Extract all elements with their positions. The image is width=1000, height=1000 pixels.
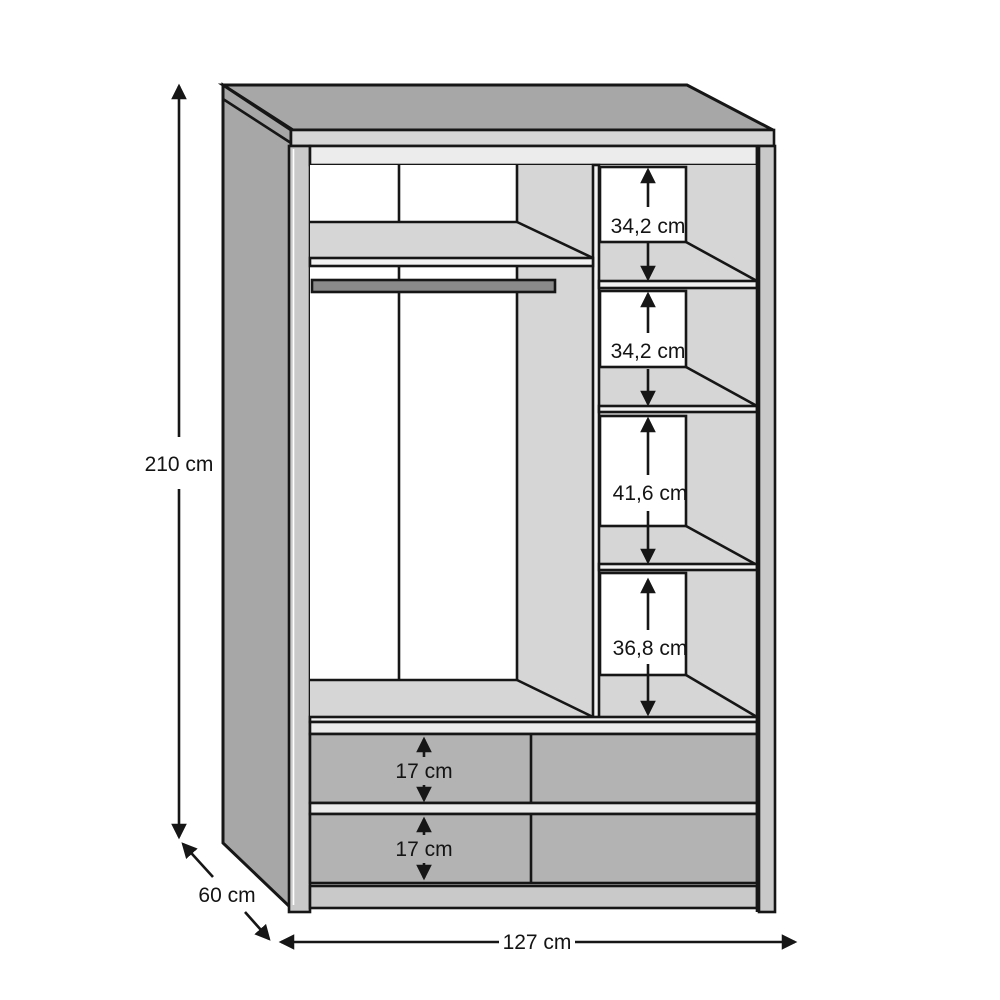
drawer-1-dimension-label: 17 cm <box>395 760 452 783</box>
depth-arrow-up <box>183 844 213 877</box>
divider-front-edge <box>593 165 599 722</box>
right-front-stile <box>759 146 775 912</box>
compartment-3-label-box <box>600 416 686 526</box>
drawer-row-1 <box>310 734 757 803</box>
cabinet-drawing <box>223 85 775 912</box>
width-dimension-label: 127 cm <box>503 931 572 954</box>
top-front-edge <box>291 130 774 146</box>
wardrobe-dimension-diagram: 34,2 cm 34,2 cm 41,6 cm 36,8 cm 17 cm 17… <box>0 0 1000 1000</box>
height-dimension-label: 210 cm <box>145 453 214 476</box>
compartment-4-dimension-label: 36,8 cm <box>613 637 688 660</box>
compartment-3-dimension-label: 41,6 cm <box>613 482 688 505</box>
drawer-top-rail <box>310 722 757 734</box>
left-shelf-front-edge <box>310 258 593 266</box>
top-inner-rail <box>310 146 757 165</box>
shelf-2-front-edge <box>599 406 757 412</box>
left-front-stile <box>289 146 310 912</box>
compartment-2-dimension-label: 34,2 cm <box>611 340 686 363</box>
shelf-3-front-edge <box>599 564 757 570</box>
base-plinth <box>310 886 757 908</box>
shelf-1-front-edge <box>599 281 757 288</box>
top-panel <box>223 85 773 130</box>
drawer-2-dimension-label: 17 cm <box>395 838 452 861</box>
hanging-rail <box>312 280 555 292</box>
compartment-1-dimension-label: 34,2 cm <box>611 215 686 238</box>
diagram-canvas: 34,2 cm 34,2 cm 41,6 cm 36,8 cm 17 cm 17… <box>0 0 1000 1000</box>
depth-dimension-label: 60 cm <box>198 884 255 907</box>
drawer-gap-rail <box>310 803 757 814</box>
left-side-panel <box>223 85 291 908</box>
depth-arrow-down <box>245 912 269 939</box>
drawer-row-2 <box>310 814 757 883</box>
